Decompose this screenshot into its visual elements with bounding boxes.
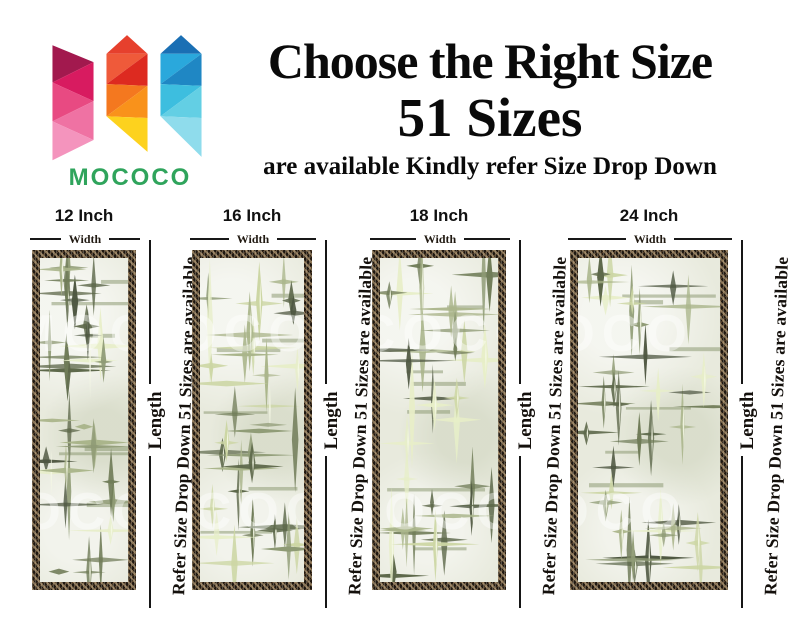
glass-panel-frame: MOCOCO MOCOCO [192,250,312,590]
refer-size-note: Refer Size Drop Down 51 Sizes are availa… [759,239,796,614]
length-measure: Length [516,240,542,608]
frosted-glass-texture: MOCOCO MOCOCO [40,258,128,582]
width-label: Width [61,232,109,247]
frosted-glass-texture: MOCOCO MOCOCO [200,258,304,582]
page-title: Choose the Right Size [228,34,752,88]
size-label: 24 Inch [556,206,742,226]
refer-size-note: Refer Size Drop Down 51 Sizes are availa… [537,239,574,614]
size-label: 18 Inch [358,206,520,226]
glass-panel-frame: MOCOCO MOCOCO [32,250,136,590]
width-label: Width [229,232,277,247]
measure-line [464,238,510,240]
length-label: Length [146,384,165,456]
glass-panel-frame: MOCOCO MOCOCO [372,250,506,590]
width-label: Width [416,232,464,247]
frosted-glass-texture: MOCOCO MOCOCO [578,258,720,582]
availability-note: are available Kindly refer Size Drop Dow… [228,153,752,181]
watermark-text: MOCOCO [380,304,498,364]
measure-line [519,456,521,608]
brand-name: MOCOCO [46,164,214,192]
watermark-text: MOCOCO [40,482,128,542]
brand-logo: MOCOCO [46,28,214,198]
watermark-text: MOCOCO [40,304,128,364]
measure-line [519,240,521,384]
watermark-text: MOCOCO [578,482,688,542]
measure-line [190,238,229,240]
watermark-text: MOCOCO [200,304,304,364]
size-label: 16 Inch [178,206,326,226]
length-label: Length [322,384,341,456]
glass-panel-frame: MOCOCO MOCOCO [570,250,728,590]
flyer-page: MOCOCO Choose the Right Size 51 Sizes ar… [0,0,800,619]
measure-line [277,238,316,240]
measure-line [741,240,743,384]
measure-line [325,240,327,384]
length-measure: Length [322,240,348,608]
measure-line [30,238,61,240]
measure-line [149,240,151,384]
width-label: Width [626,232,674,247]
watermark-text: MOCOCO [380,482,498,542]
measure-line [325,456,327,608]
length-measure: Length [146,240,172,608]
measure-line [674,238,732,240]
length-measure: Length [738,240,764,608]
measure-line [149,456,151,608]
measure-line [741,456,743,608]
measure-line [109,238,140,240]
watermark-text: MOCOCO [200,482,304,542]
mococo-m-icon [46,30,208,162]
length-label: Length [516,384,535,456]
heading-block: Choose the Right Size 51 Sizes are avail… [228,34,752,181]
measure-line [370,238,416,240]
sizes-count-title: 51 Sizes [228,90,752,145]
size-label: 12 Inch [18,206,150,226]
width-measure: Width [370,232,510,246]
width-measure: Width [568,232,732,246]
length-label: Length [738,384,757,456]
watermark-text: MOCOCO [578,304,694,364]
measure-line [568,238,626,240]
width-measure: Width [190,232,316,246]
width-measure: Width [30,232,140,246]
frosted-glass-texture: MOCOCO MOCOCO [380,258,498,582]
